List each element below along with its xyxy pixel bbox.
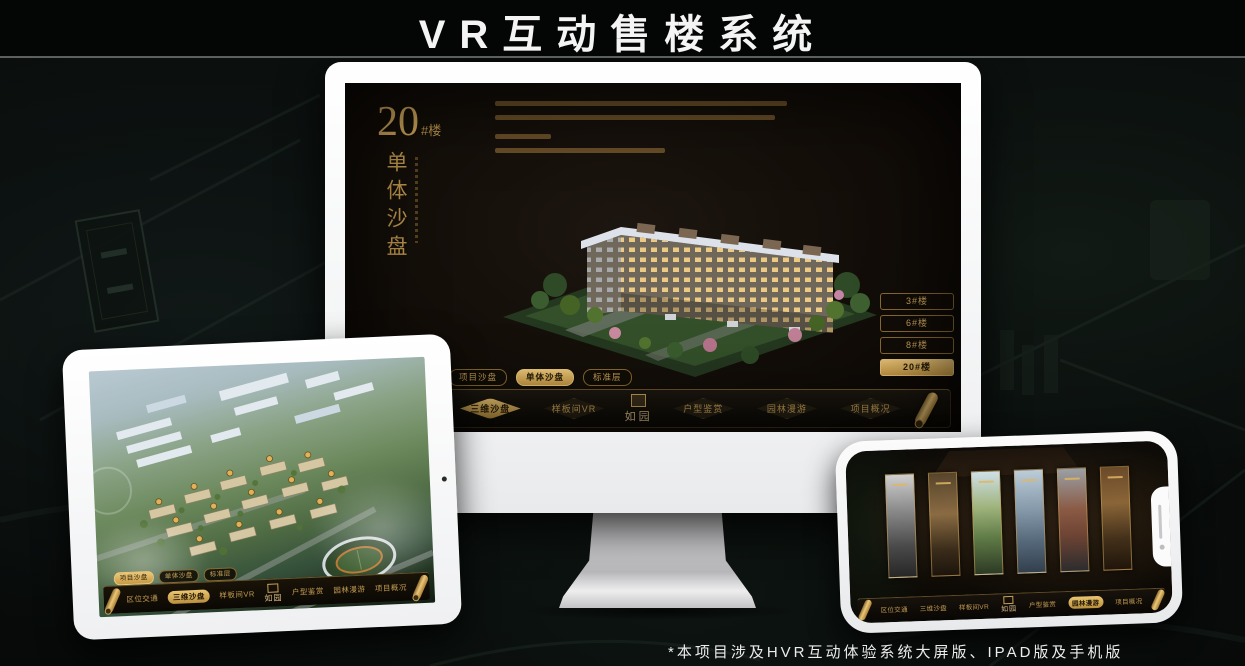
phone-nav-3d-sandtable[interactable]: 三维沙盘 [920,602,948,613]
tablet-nav-garden-roam[interactable]: 园林漫游 [333,584,365,596]
speaker-slot-icon [1158,505,1162,539]
floor-button-20[interactable]: 20#楼 [880,359,954,376]
brand-logo[interactable]: 如园 [625,394,653,424]
footnote-text: *本项目涉及HVR互动体验系统大屏版、IPAD版及手机版 [668,641,1123,662]
heading-vertical-subtitle: 单体沙盘 [381,151,411,263]
building-heading: 20#楼 [377,101,441,143]
building-number: 20 [377,99,419,145]
intro-line [495,148,665,153]
intro-line [495,134,551,139]
intro-line [495,115,775,120]
gallery-panel[interactable] [1057,467,1090,572]
scroll-menu-icon[interactable] [1150,588,1165,611]
tab-standard-floor[interactable]: 标准层 [583,369,632,386]
tablet-nav-project-overview[interactable]: 项目概况 [375,582,407,594]
tablet-nav-showroom-vr[interactable]: 样板间VR [219,588,255,601]
tablet-screen: 项目沙盘 单体沙盘 标准层 区位交通 三维沙盘 样板间VR 如园 户型鉴赏 园林… [89,357,435,617]
intro-text-lines [495,101,787,162]
brand-seal-icon [631,394,646,407]
intro-line [495,101,787,106]
phone-nav-showroom-vr[interactable]: 样板间VR [959,600,989,611]
phone-nav-floorplan[interactable]: 户型鉴赏 [1029,598,1057,609]
tablet-nav-location[interactable]: 区位交通 [126,593,158,605]
floor-button-group: 3#楼 6#楼 8#楼 20#楼 [880,293,954,376]
nav-item-floorplan[interactable]: 户型鉴赏 [670,398,736,419]
camera-dot-icon [1159,545,1164,550]
brand-logo[interactable]: 如园 [264,583,283,604]
tab-project-sandtable[interactable]: 项目沙盘 [449,369,507,386]
gallery-panel[interactable] [928,472,961,577]
phone-nav-project-overview[interactable]: 项目概况 [1115,595,1143,606]
title-divider [0,56,1245,58]
view-tab-row: 项目沙盘 单体沙盘 标准层 [449,369,632,386]
tablet-camera-dot [442,476,447,481]
brand-logo-text: 如园 [264,592,282,604]
gallery-panel[interactable] [1100,466,1133,571]
tablet-nav-floorplan[interactable]: 户型鉴赏 [292,585,324,597]
gallery-panel[interactable] [885,473,918,578]
page-title: VR互动售楼系统 [0,2,1245,60]
floor-button-8[interactable]: 8#楼 [880,337,954,354]
phone-device: 区位交通 三维沙盘 样板间VR 如园 户型鉴赏 园林漫游 项目概况 [835,430,1183,634]
tablet-nav-3d-sandtable[interactable]: 三维沙盘 [168,589,211,604]
scroll-menu-icon[interactable] [913,390,940,427]
nav-item-project-overview[interactable]: 项目概况 [838,398,904,419]
mist-overlay [310,472,436,588]
scroll-menu-icon[interactable] [857,598,872,621]
heading-vertical-ornament [415,157,418,243]
scroll-menu-icon[interactable] [412,573,430,600]
phone-navbar: 区位交通 三维沙盘 样板间VR 如园 户型鉴赏 园林漫游 项目概况 [857,588,1166,621]
phone-nav-location[interactable]: 区位交通 [880,603,908,614]
tab-single-sandtable[interactable]: 单体沙盘 [516,369,574,386]
tablet-device: 项目沙盘 单体沙盘 标准层 区位交通 三维沙盘 样板间VR 如园 户型鉴赏 园林… [62,334,462,641]
building-3d-model[interactable] [495,165,887,377]
phone-screen: 区位交通 三维沙盘 样板间VR 如园 户型鉴赏 园林漫游 项目概况 [845,440,1173,623]
gallery-panel[interactable] [1014,469,1047,574]
phone-nav-garden-roam[interactable]: 园林漫游 [1068,595,1104,608]
floor-button-6[interactable]: 6#楼 [880,315,954,332]
nav-item-showroom-vr[interactable]: 样板间VR [541,398,607,419]
brand-logo-text: 如园 [1001,603,1017,614]
floor-button-3[interactable]: 3#楼 [880,293,954,310]
brand-logo-text: 如园 [625,408,653,424]
background-sign-board [76,210,158,331]
brand-logo[interactable]: 如园 [1001,595,1018,614]
nav-item-3d-sandtable[interactable]: 三维沙盘 [457,398,523,419]
gallery-panel[interactable] [971,470,1004,575]
building-number-suffix: #楼 [421,123,441,138]
nav-item-garden-roam[interactable]: 园林漫游 [754,398,820,419]
phone-notch [1151,486,1172,567]
scene-gallery [885,466,1132,578]
scroll-menu-icon[interactable] [104,587,122,614]
poster-canvas: VR互动售楼系统 20#楼 单体沙盘 [0,0,1245,666]
